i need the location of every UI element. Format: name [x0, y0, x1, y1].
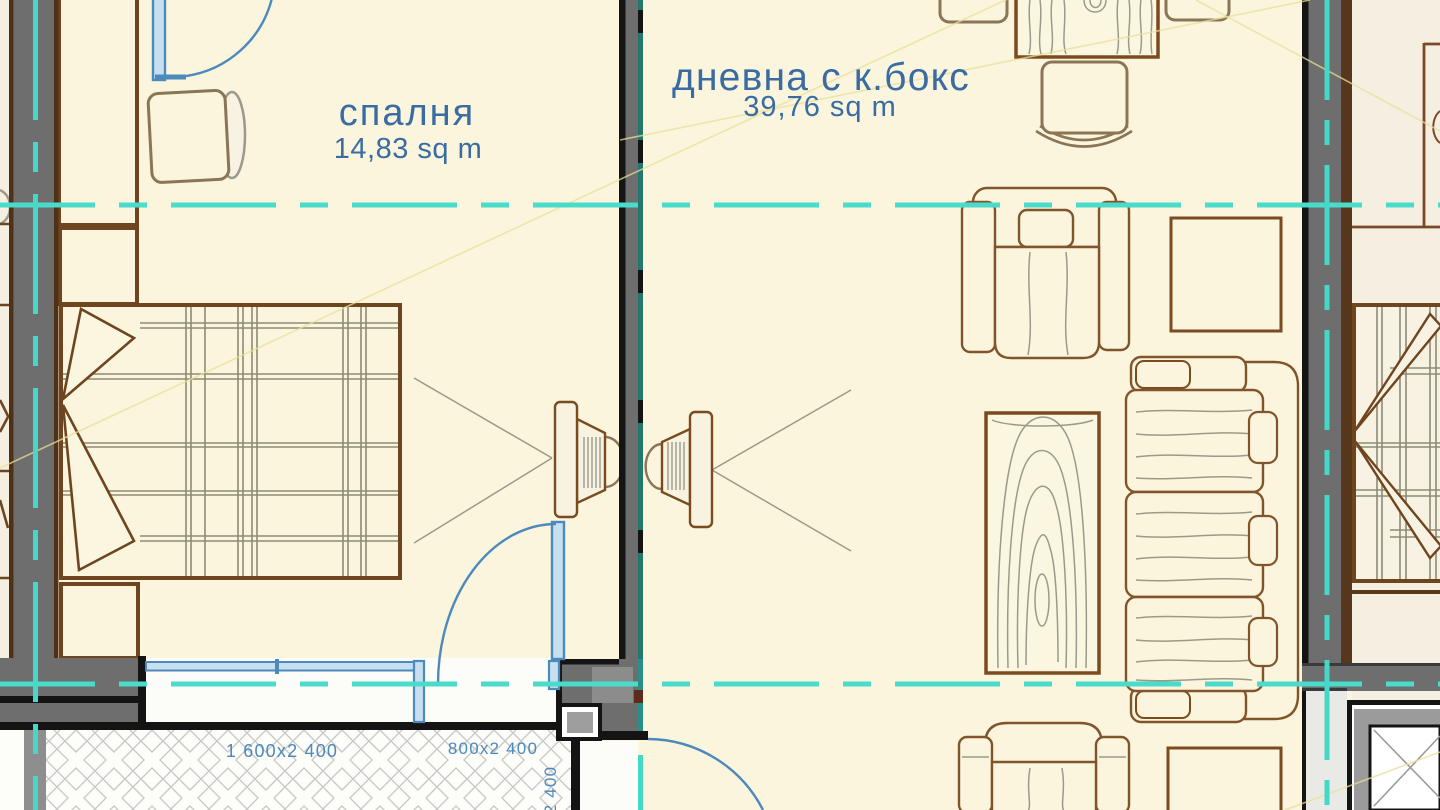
- svg-text:800x2 400: 800x2 400: [448, 739, 538, 758]
- svg-text:14,83 sq m: 14,83 sq m: [334, 133, 482, 165]
- svg-text:спалня: спалня: [339, 92, 475, 134]
- svg-text:1 600x2 400: 1 600x2 400: [226, 741, 338, 761]
- svg-text:39,76 sq m: 39,76 sq m: [743, 91, 896, 123]
- svg-text:2 400: 2 400: [541, 766, 560, 810]
